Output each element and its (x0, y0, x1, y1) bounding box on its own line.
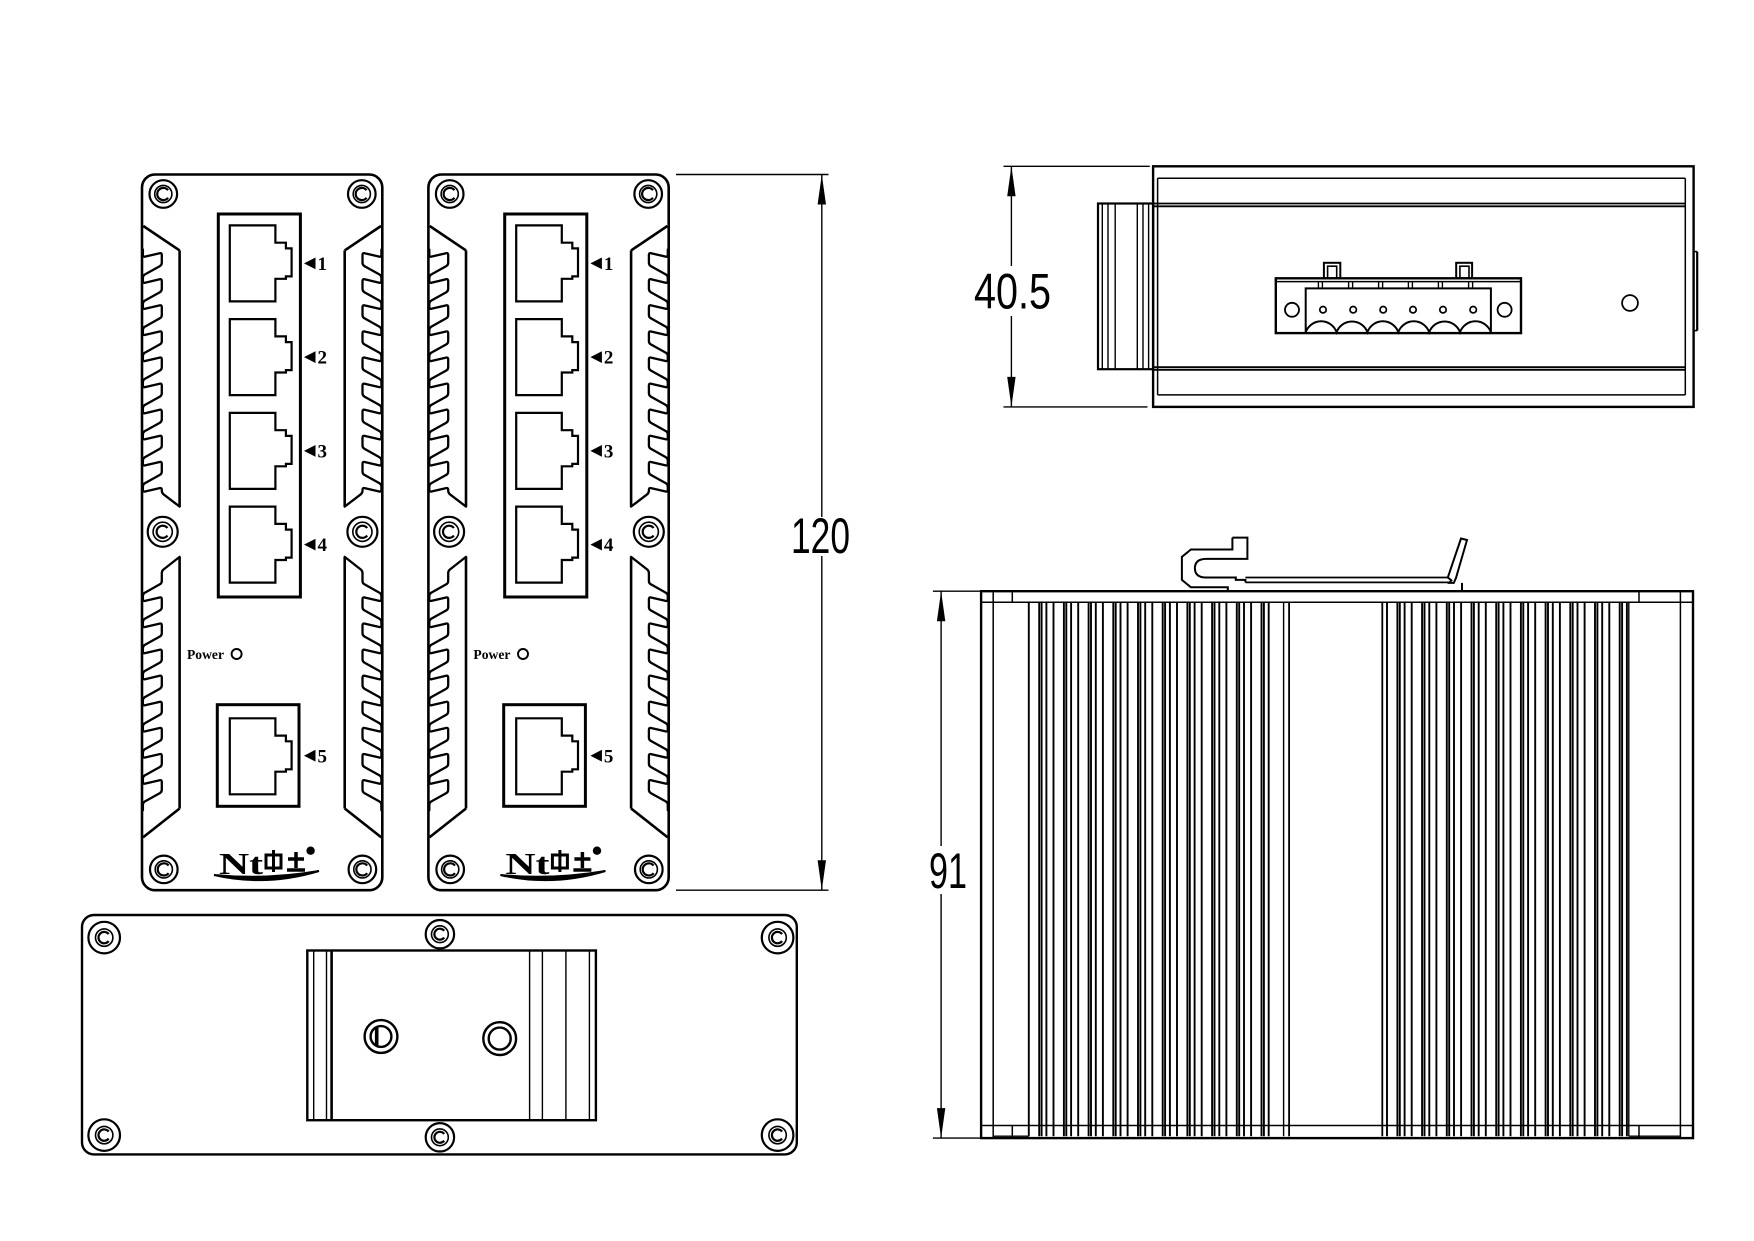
svg-text:3: 3 (318, 442, 328, 463)
svg-text:40.5: 40.5 (974, 264, 1051, 320)
svg-text:120: 120 (791, 508, 850, 564)
svg-text:5: 5 (318, 746, 328, 767)
svg-text:4: 4 (318, 535, 328, 556)
svg-text:Power: Power (187, 648, 224, 663)
svg-text:1: 1 (318, 254, 328, 275)
svg-text:2: 2 (318, 348, 328, 369)
svg-text:91: 91 (929, 843, 967, 899)
